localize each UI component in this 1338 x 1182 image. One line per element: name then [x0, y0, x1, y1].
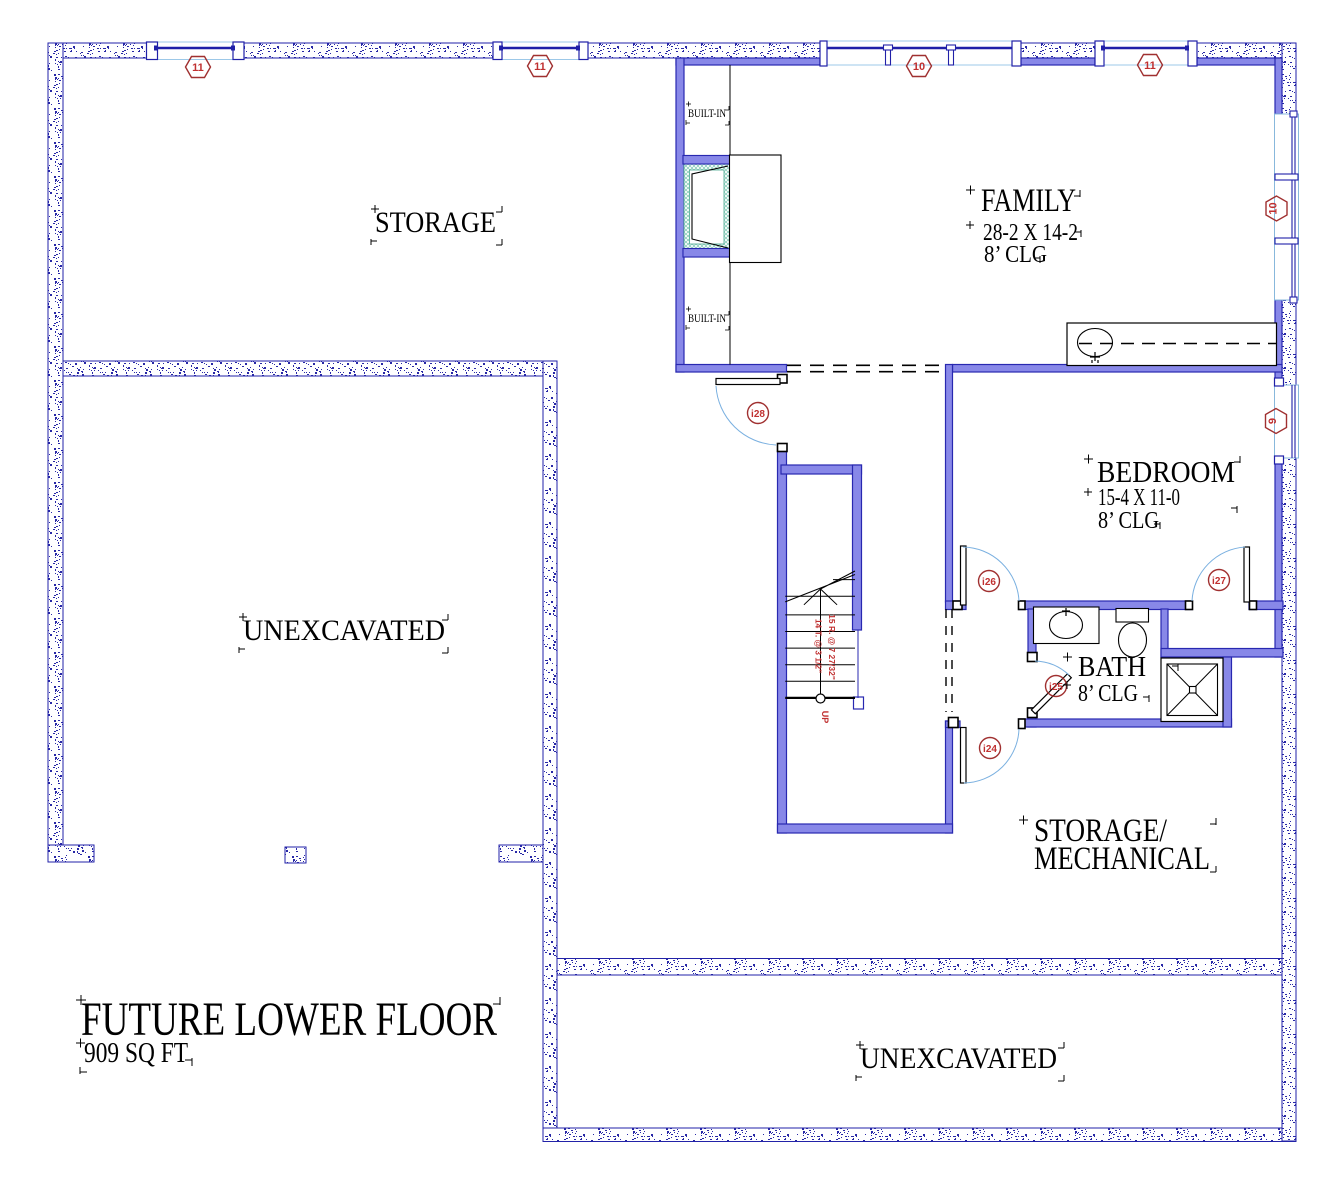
svg-text:8’ CLG: 8’ CLG — [984, 242, 1047, 268]
svg-text:i26: i26 — [982, 577, 996, 588]
svg-text:BATH: BATH — [1078, 651, 1146, 683]
svg-text:UNEXCAVATED: UNEXCAVATED — [243, 614, 445, 647]
svg-text:BEDROOM: BEDROOM — [1097, 454, 1235, 489]
svg-text:8’ CLG: 8’ CLG — [1078, 681, 1138, 707]
svg-text:10: 10 — [1268, 202, 1280, 214]
svg-text:i27: i27 — [1212, 576, 1226, 587]
svg-text:8’ CLG: 8’ CLG — [1098, 508, 1159, 534]
svg-text:11: 11 — [1144, 60, 1156, 72]
svg-text:UP: UP — [820, 711, 830, 724]
svg-text:MECHANICAL: MECHANICAL — [1034, 841, 1210, 877]
svg-text:11: 11 — [192, 62, 204, 74]
svg-text:11: 11 — [534, 61, 546, 73]
svg-text:14 T. @ 3 1/2": 14 T. @ 3 1/2" — [814, 619, 824, 673]
svg-text:BUILT-IN: BUILT-IN — [688, 106, 726, 120]
svg-text:i28: i28 — [751, 409, 765, 420]
svg-text:9: 9 — [1267, 418, 1279, 424]
svg-text:10: 10 — [913, 61, 925, 73]
svg-text:UNEXCAVATED: UNEXCAVATED — [860, 1042, 1057, 1075]
svg-text:FAMILY: FAMILY — [981, 183, 1076, 219]
svg-text:15 R. @ 7 27/32": 15 R. @ 7 27/32" — [827, 614, 837, 680]
svg-text:i25: i25 — [1049, 682, 1063, 693]
svg-text:STORAGE: STORAGE — [375, 206, 496, 239]
svg-text:BUILT-IN: BUILT-IN — [688, 311, 726, 325]
svg-text:i24: i24 — [983, 744, 997, 755]
svg-text:909 SQ FT: 909 SQ FT — [84, 1037, 188, 1069]
